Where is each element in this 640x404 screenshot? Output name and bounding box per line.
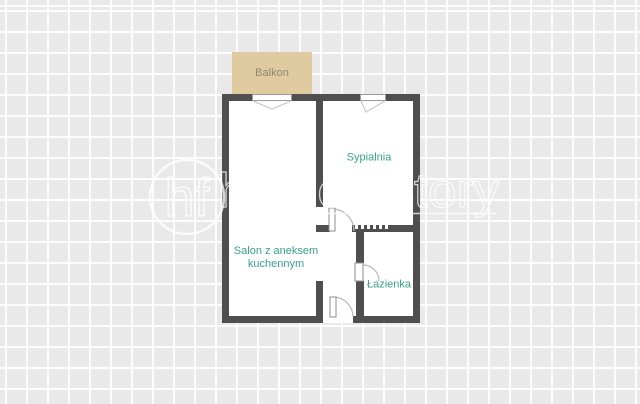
room-label-salon: Salon z aneksem kuchennym	[211, 245, 341, 271]
wall-bottom-right	[353, 316, 420, 323]
wall-bottom-left	[222, 316, 323, 323]
wall-bathroom-upper	[356, 232, 364, 263]
wall-top-middle	[292, 94, 360, 101]
room-label-lazienka: Łazienka	[367, 279, 411, 292]
wall-stub-door-left	[316, 225, 330, 232]
room-label-sypialnia: Sypialnia	[347, 152, 392, 165]
watermark-logo-circle	[150, 160, 224, 234]
wall-sypialnia-lazienka	[390, 225, 413, 232]
watermark-logo-text: hf	[164, 168, 210, 228]
floor-plan-canvas: Balkon	[0, 0, 640, 404]
balcony-label: Balkon	[255, 67, 289, 79]
wall-left	[222, 94, 229, 323]
balcony: Balkon	[232, 52, 312, 94]
wall-vestibule-stub	[316, 281, 323, 316]
wall-bathroom-lower	[356, 281, 364, 316]
wall-salon-sypialnia	[316, 101, 323, 207]
wall-vent-hatched	[352, 225, 390, 232]
wall-right	[413, 94, 420, 323]
